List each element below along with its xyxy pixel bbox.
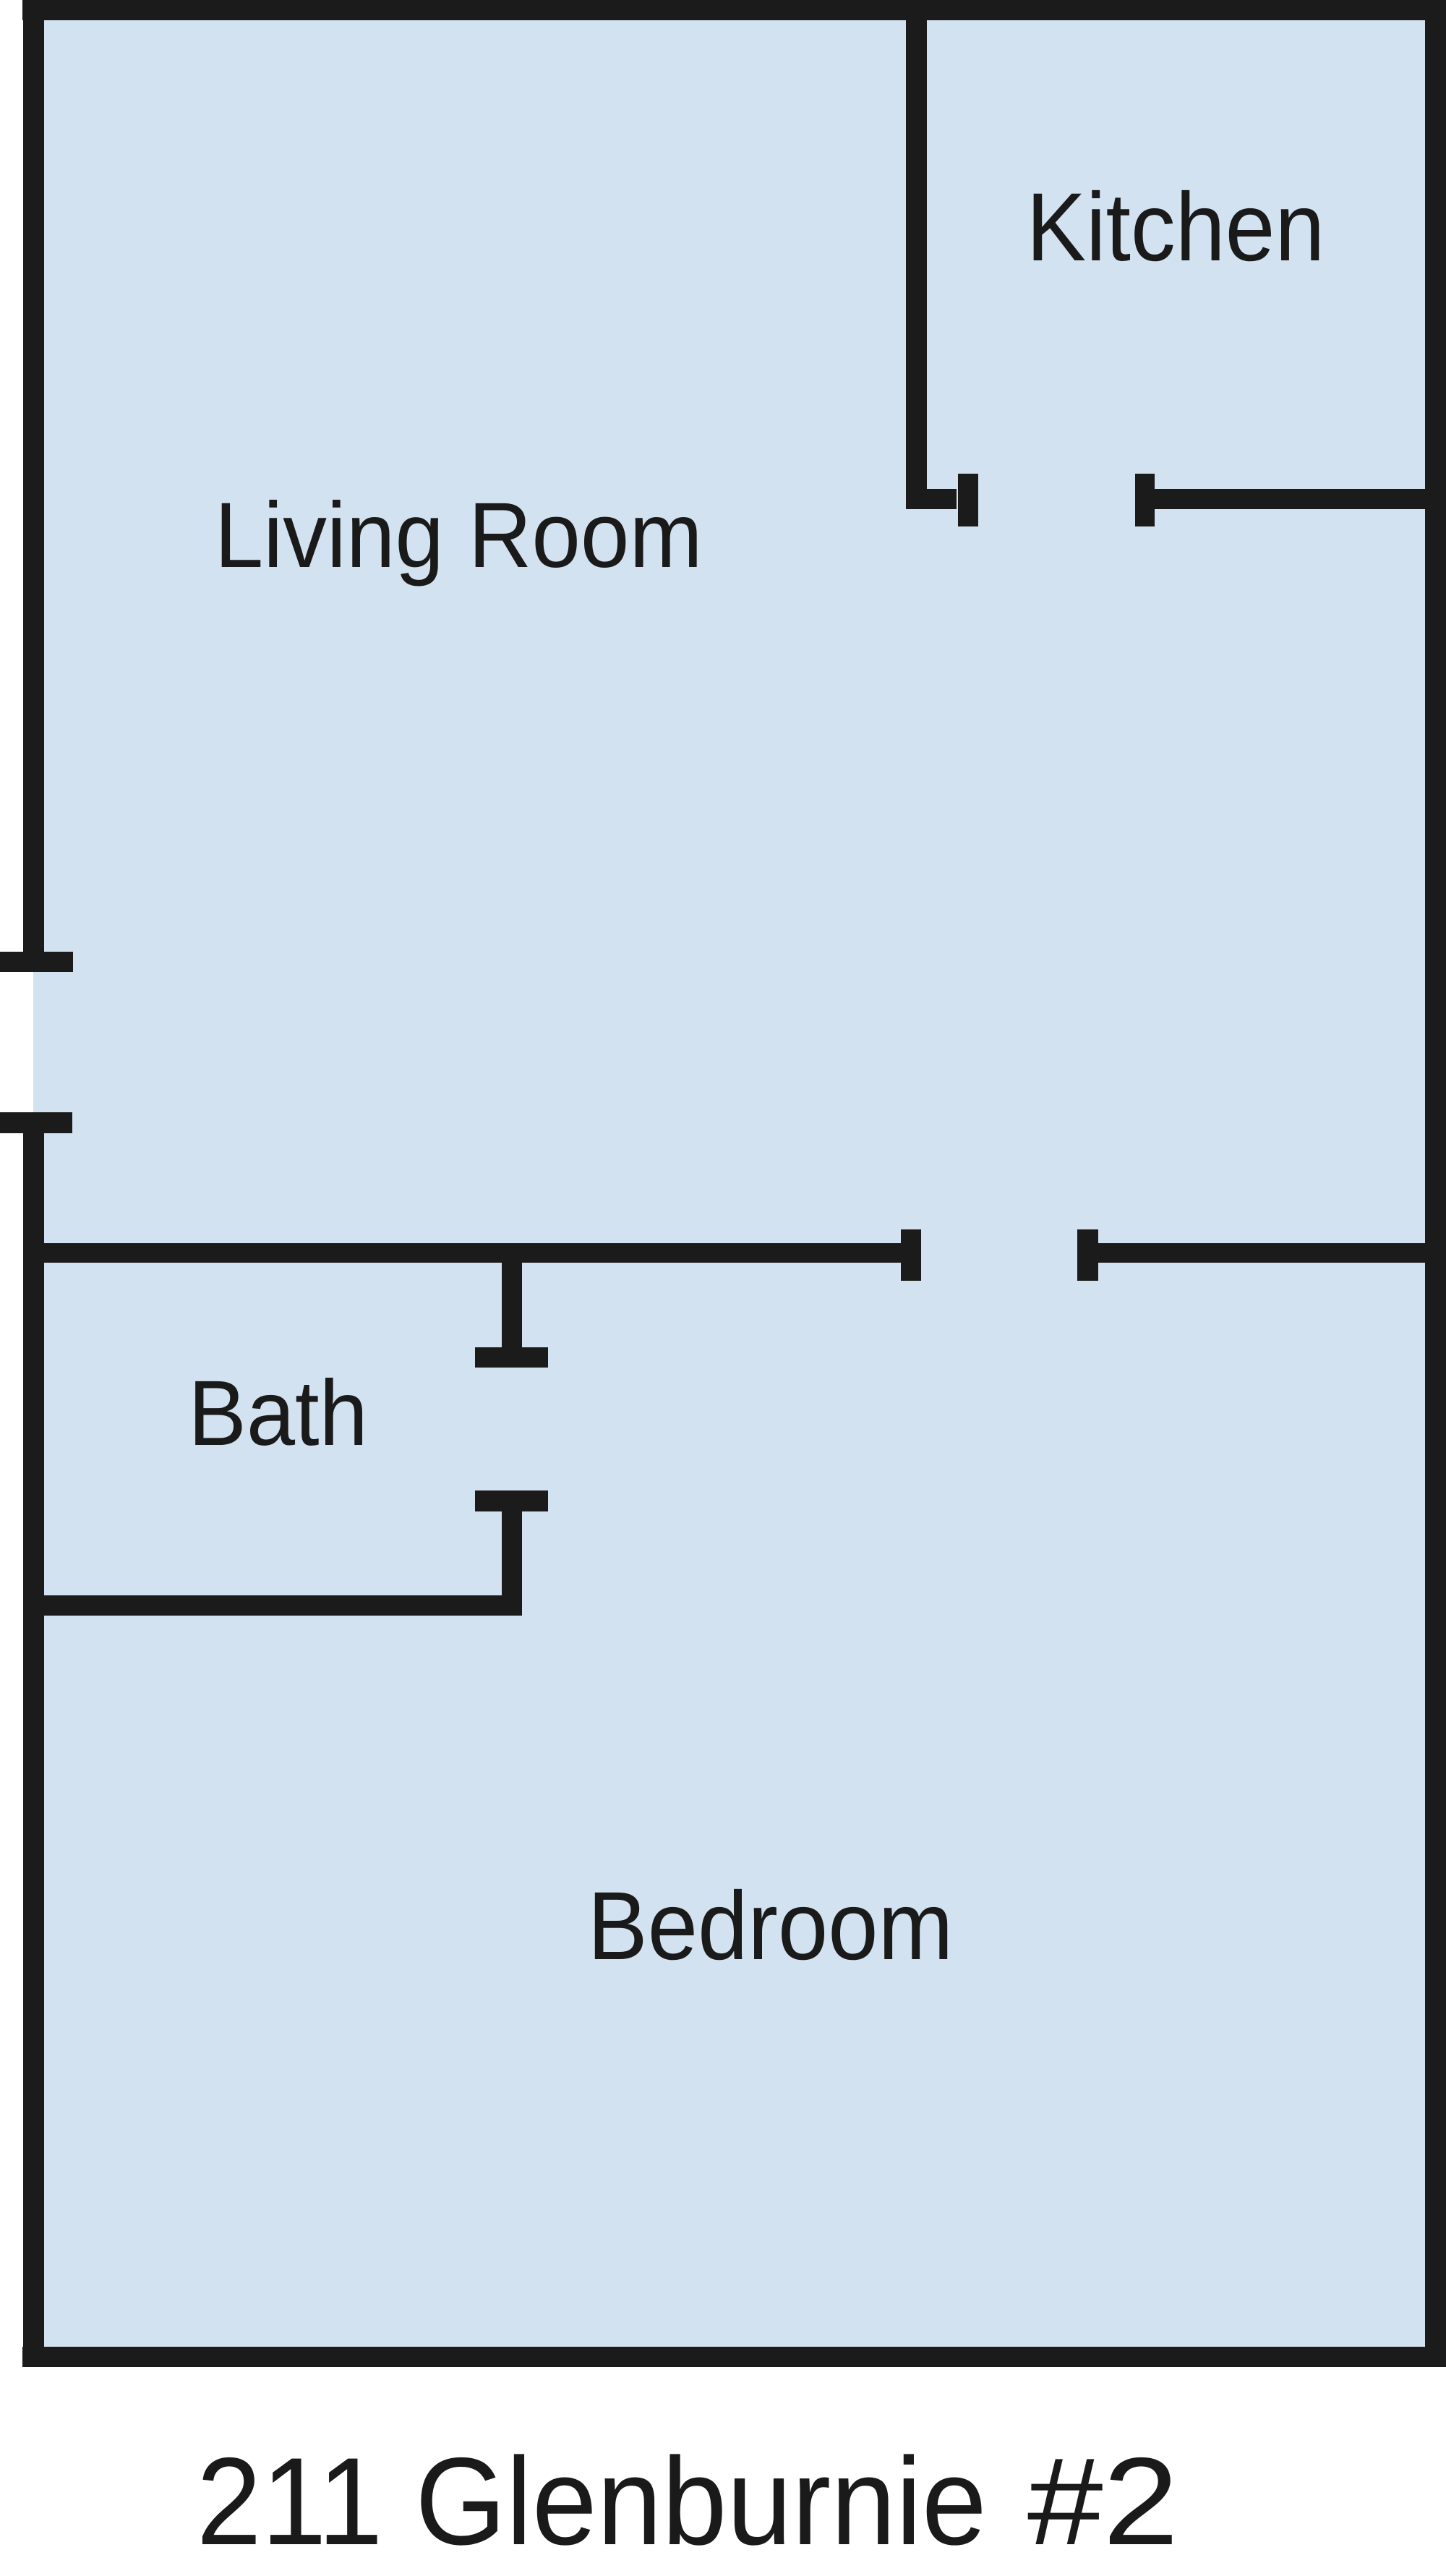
svg-text:211 Glenburnie: 211 Glenburnie	[197, 2432, 987, 2571]
svg-text:Bedroom: Bedroom	[588, 1872, 954, 1980]
svg-text:Bath: Bath	[188, 1362, 367, 1465]
svg-text:Living Room: Living Room	[215, 484, 703, 587]
svg-text:#2: #2	[1027, 2432, 1178, 2571]
svg-text:Kitchen: Kitchen	[1027, 173, 1325, 281]
